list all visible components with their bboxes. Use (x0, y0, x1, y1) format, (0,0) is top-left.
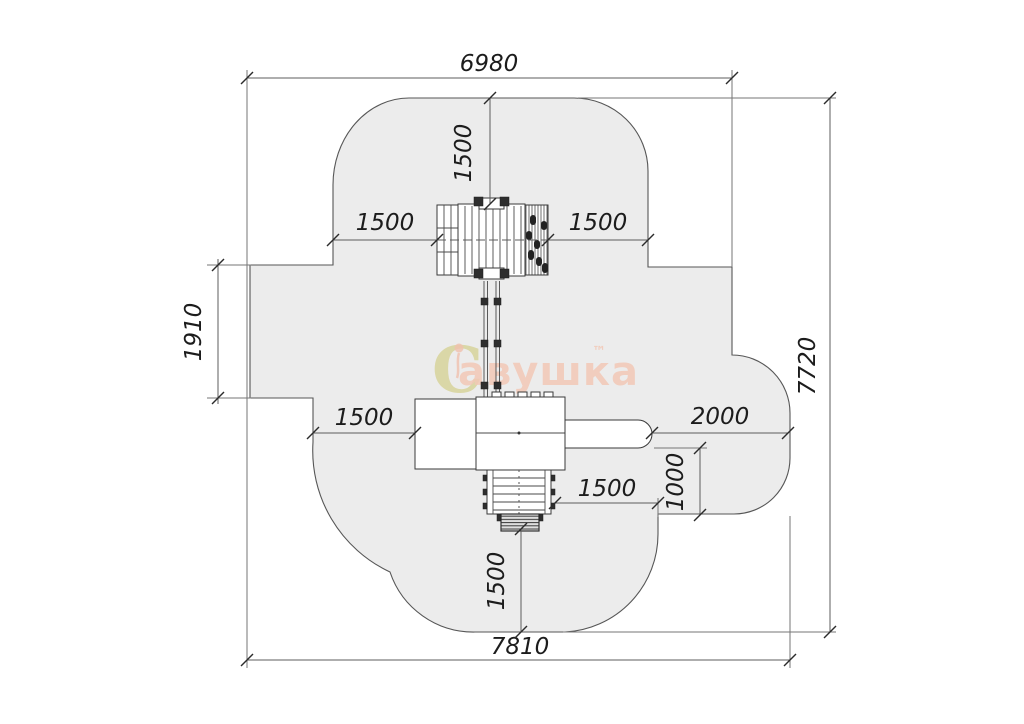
entry-step-tab (539, 514, 543, 521)
entry-step-tab (497, 514, 501, 521)
tower-post (500, 197, 509, 206)
stairs (483, 470, 555, 514)
tower-post (474, 197, 483, 206)
dim-label-bottom-width: 7810 (491, 634, 550, 660)
dim-label-slide-to-right: 2000 (691, 404, 750, 430)
dimension-slide-side-clearance: 1000 (663, 442, 706, 521)
dimension-left-height: 1910 (181, 259, 224, 404)
slide (565, 420, 652, 448)
equipment-tower (437, 197, 548, 279)
dimension-bottom-width: 7810 (241, 634, 796, 666)
dim-label-stairs-to-bottom: 1500 (484, 552, 510, 611)
dim-label-left-to-tower: 1500 (356, 210, 415, 236)
dim-label-top-width: 6980 (460, 51, 519, 77)
plan-drawing: C авушка ™ (0, 0, 1024, 724)
platform-center-mark (518, 432, 521, 435)
dimension-right-height: 7720 (795, 92, 836, 638)
dimension-top-width: 6980 (241, 51, 738, 84)
dim-label-left-to-platform: 1500 (335, 405, 394, 431)
platform-right (476, 397, 565, 470)
entry-step (501, 514, 539, 531)
tower-post (500, 269, 509, 278)
dim-label-slide-side: 1000 (663, 453, 689, 512)
roof-tabs (492, 392, 553, 397)
dim-label-stairs-to-right: 1500 (578, 476, 637, 502)
dim-label-tower-to-right: 1500 (569, 210, 628, 236)
tower-post (474, 269, 483, 278)
watermark-tm: ™ (592, 344, 606, 360)
dim-label-top-clearance: 1500 (451, 124, 477, 183)
dim-label-left-height: 1910 (181, 303, 207, 362)
platform-left (415, 399, 476, 469)
dim-label-right-height: 7720 (795, 337, 821, 396)
